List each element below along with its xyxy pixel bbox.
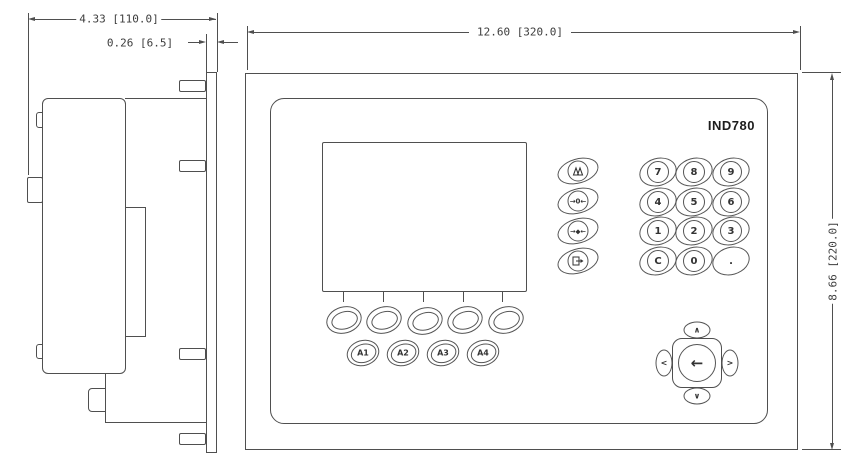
dim-width-line (571, 32, 793, 33)
extension-line (802, 449, 841, 450)
enter-arrow-icon: ← (691, 354, 704, 372)
arrowhead (830, 73, 834, 80)
softkey-tick (502, 292, 503, 302)
nav-up-key: ∧ (684, 322, 711, 339)
chevron-down-icon: ∨ (694, 392, 701, 401)
nav-enter-key: ← (678, 344, 716, 382)
softkey-tick (383, 292, 384, 302)
softkey-tick (423, 292, 424, 302)
side-view-mounting-panel (206, 72, 217, 453)
arrowhead (793, 30, 800, 34)
dim-depth-line (160, 19, 216, 20)
dim-height-line (832, 79, 833, 219)
dim-thickness-line (224, 42, 238, 43)
dim-depth-label: 4.33 [110.0] (76, 13, 161, 26)
nav-right-key: > (722, 350, 739, 377)
nav-down-key: ∨ (684, 388, 711, 405)
arrowhead (28, 17, 35, 21)
dim-width-label: 12.60 [320.0] (474, 26, 566, 39)
side-view-rear-block (125, 207, 146, 337)
side-view-bottom-tab (36, 344, 43, 359)
dim-thickness-label: 0.26 [6.5] (104, 37, 176, 50)
arrowhead (217, 40, 224, 44)
dim-height-label: 8.66 [220.0] (827, 218, 840, 303)
arrowhead (199, 40, 206, 44)
zero-icon: →0← (570, 197, 587, 205)
side-view-top-tab (36, 112, 43, 128)
panel-clip (179, 160, 206, 172)
softkey-tick (343, 292, 344, 302)
panel-clip (179, 80, 206, 92)
extension-line (28, 13, 29, 175)
dim-height-line (832, 303, 833, 444)
app-key-label: A2 (397, 349, 409, 358)
app-key-label: A4 (477, 349, 489, 358)
nav-left-key: < (656, 350, 673, 377)
chevron-right-icon: > (727, 359, 734, 368)
dim-depth-line (33, 19, 78, 20)
panel-clip (179, 433, 206, 445)
panel-clip (179, 348, 206, 360)
dim-width-line (254, 32, 469, 33)
arrowhead (830, 443, 834, 450)
chevron-left-icon: < (661, 359, 668, 368)
softkey-tick (463, 292, 464, 302)
extension-line (802, 72, 841, 73)
arrowhead (247, 30, 254, 34)
side-view-top-edge (125, 98, 206, 99)
tare-icon: →◆← (570, 227, 586, 235)
dimension-drawing: 4.33 [110.0] 0.26 [6.5] 12.60 [320.0] 8.… (0, 0, 865, 470)
app-key-label: A3 (437, 349, 449, 358)
chevron-up-icon: ∧ (694, 326, 701, 335)
side-view-enclosure-body (42, 98, 126, 374)
display (322, 142, 527, 292)
app-key-label: A1 (357, 349, 369, 358)
side-view-bottom-connector (88, 388, 106, 412)
model-label: IND780 (683, 118, 755, 133)
extension-line (800, 26, 801, 70)
arrowhead (209, 17, 216, 21)
side-view-lower-chassis (105, 373, 206, 423)
scale-select-icon (572, 166, 585, 177)
side-view-left-connector (27, 177, 43, 203)
extension-line (206, 34, 207, 72)
dim-thickness-line (188, 42, 199, 43)
print-icon (572, 256, 585, 267)
